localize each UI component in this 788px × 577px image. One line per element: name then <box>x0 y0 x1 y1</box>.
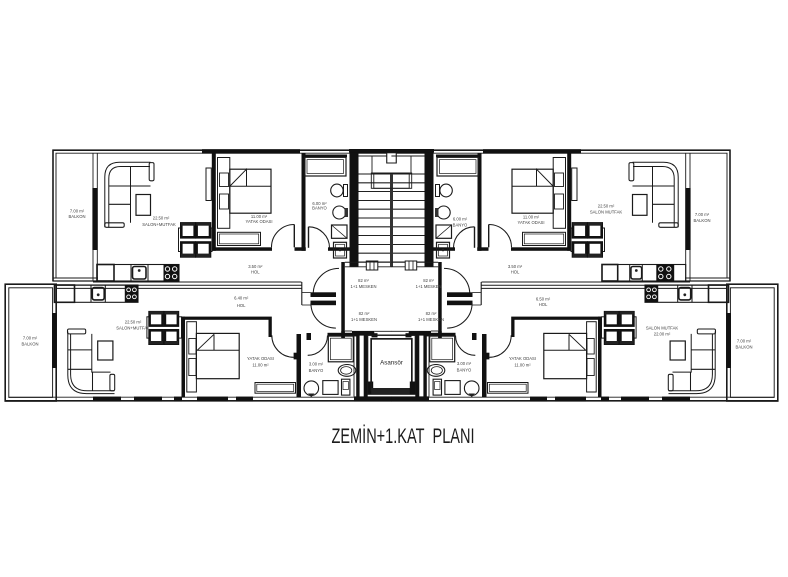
svg-text:HOL: HOL <box>511 270 520 275</box>
svg-text:BANYO: BANYO <box>457 367 472 372</box>
svg-text:1+1 MESKEN: 1+1 MESKEN <box>416 284 442 289</box>
svg-text:SALON+MUTFAK: SALON+MUTFAK <box>142 222 176 227</box>
svg-text:7.00 m²: 7.00 m² <box>23 336 38 341</box>
svg-text:7.00 m²: 7.00 m² <box>70 208 85 213</box>
svg-text:HOL: HOL <box>251 270 260 275</box>
svg-text:YATAK ODASI: YATAK ODASI <box>518 220 545 225</box>
svg-text:3.50 m²: 3.50 m² <box>508 264 523 269</box>
svg-text:82 m²: 82 m² <box>359 311 370 316</box>
svg-text:ZEMİN+1.KAT PLANI: ZEMİN+1.KAT PLANI <box>332 425 475 448</box>
svg-text:11.00 m²: 11.00 m² <box>514 362 531 367</box>
svg-text:3.50 m²: 3.50 m² <box>248 264 263 269</box>
svg-text:HOL: HOL <box>237 303 246 308</box>
svg-text:BANYO: BANYO <box>453 222 468 227</box>
svg-text:YATAK ODASI: YATAK ODASI <box>246 219 273 224</box>
svg-text:YATAK ODASI: YATAK ODASI <box>247 356 274 361</box>
svg-text:1+1 MESKEN: 1+1 MESKEN <box>418 317 444 322</box>
svg-text:BALKON: BALKON <box>69 214 86 219</box>
svg-text:22.00 m²: 22.00 m² <box>654 331 671 336</box>
svg-text:1+1 MESKEN: 1+1 MESKEN <box>351 284 377 289</box>
svg-text:7.00 m²: 7.00 m² <box>737 338 752 343</box>
svg-text:22.50 m²: 22.50 m² <box>598 204 615 209</box>
svg-text:SALON MUTFAK: SALON MUTFAK <box>646 326 679 331</box>
svg-text:BALKON: BALKON <box>736 344 753 349</box>
svg-text:82 m²: 82 m² <box>423 278 434 283</box>
svg-text:YATAK ODASI: YATAK ODASI <box>509 356 536 361</box>
svg-text:6.40 m²: 6.40 m² <box>234 295 249 300</box>
svg-text:SALON MUTFAK: SALON MUTFAK <box>590 210 623 215</box>
svg-text:7.00 m²: 7.00 m² <box>695 212 710 217</box>
svg-text:BALKON: BALKON <box>22 342 39 347</box>
svg-text:HOL: HOL <box>539 302 548 307</box>
svg-text:11.00 m²: 11.00 m² <box>252 362 269 367</box>
svg-text:6.50 m²: 6.50 m² <box>536 297 551 302</box>
svg-text:82 m²: 82 m² <box>426 311 437 316</box>
svg-text:3.00 m²: 3.00 m² <box>457 361 472 366</box>
svg-text:22.50 m²: 22.50 m² <box>125 320 142 325</box>
svg-text:Asansör: Asansör <box>380 360 403 367</box>
svg-text:82 m²: 82 m² <box>358 278 369 283</box>
svg-text:BANYO: BANYO <box>312 206 327 211</box>
svg-text:BANYO: BANYO <box>309 368 324 373</box>
svg-text:11.00 m²: 11.00 m² <box>523 215 540 220</box>
svg-text:BALKON: BALKON <box>694 218 711 223</box>
svg-text:3.00 m²: 3.00 m² <box>309 362 324 367</box>
svg-text:1+1 MESKEN: 1+1 MESKEN <box>351 317 377 322</box>
svg-text:22.50 m²: 22.50 m² <box>153 215 170 220</box>
svg-text:SALON+MUTFAK: SALON+MUTFAK <box>116 326 150 331</box>
svg-text:6.00 m²: 6.00 m² <box>453 217 468 222</box>
